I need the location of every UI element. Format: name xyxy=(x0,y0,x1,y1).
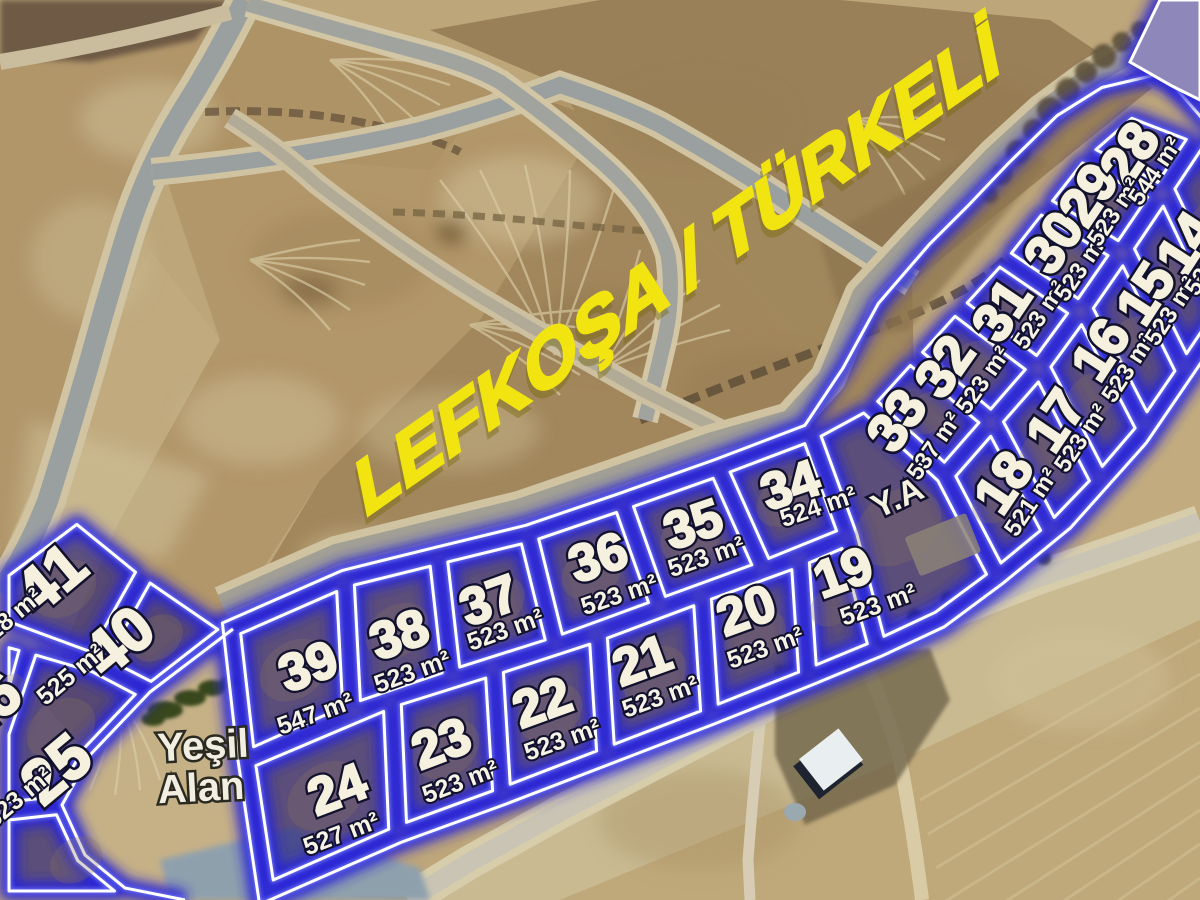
svg-text:Yeşil: Yeşil xyxy=(156,722,249,771)
svg-text:Alan: Alan xyxy=(157,764,246,812)
